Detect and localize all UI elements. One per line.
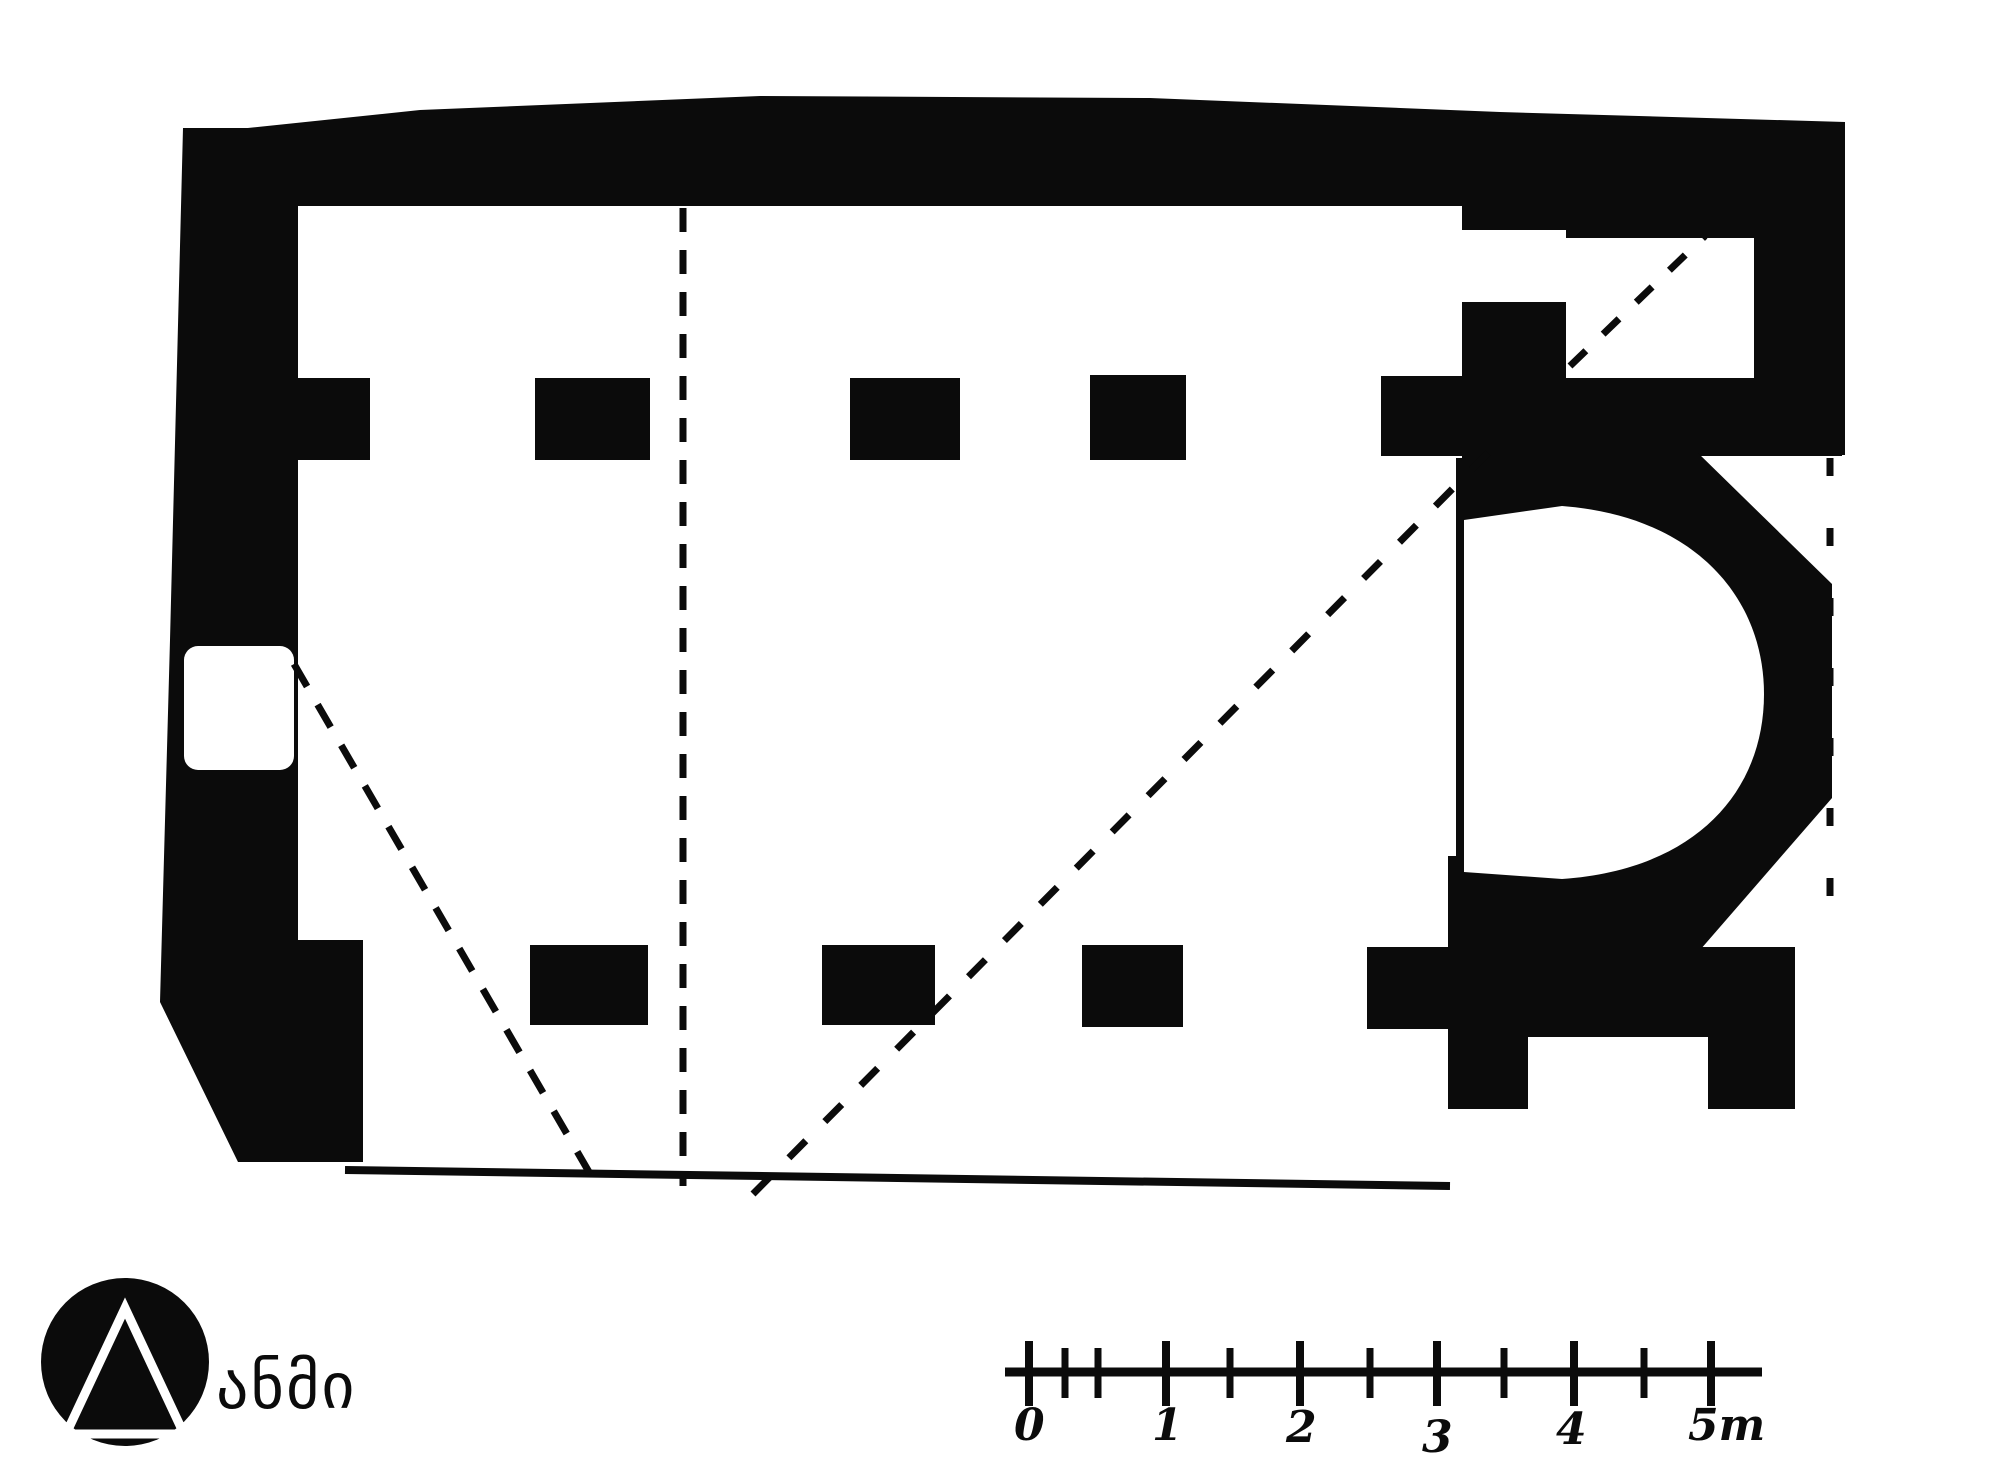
north-pier-respond	[298, 378, 370, 460]
scale-bar: 0 1 2 3 4 5m	[1005, 1341, 1765, 1463]
south-segment-1	[530, 945, 648, 1025]
west-wall	[160, 128, 363, 1162]
south-wall-east	[1367, 947, 1795, 1029]
scale-label-3: 3	[1422, 1412, 1453, 1463]
scale-label-1: 1	[1152, 1400, 1183, 1451]
floor-plan-drawing: 0 1 2 3 4 5m ანმი	[0, 0, 2000, 1473]
south-wall-outline	[345, 1170, 1450, 1186]
scale-label-4: 4	[1556, 1404, 1587, 1455]
northeast-chamber	[1566, 238, 1754, 378]
apse-north-wall-band	[1381, 376, 1842, 456]
north-pier-4	[1090, 375, 1186, 460]
west-door-opening	[184, 646, 294, 770]
north-pier-3	[850, 378, 960, 460]
logo: ანმი	[41, 1278, 357, 1446]
scale-label-2: 2	[1285, 1402, 1317, 1453]
scale-label-5m: 5m	[1688, 1400, 1765, 1451]
logo-text: ანმი	[216, 1350, 357, 1424]
document: 0 1 2 3 4 5m ანმი	[0, 0, 2000, 1473]
north-chancel-door	[1462, 230, 1566, 302]
southeast-door-notch	[1528, 1037, 1708, 1109]
north-wall	[190, 96, 1845, 240]
scale-bar-labels: 0 1 2 3 4 5m	[1014, 1400, 1765, 1463]
north-pier-2	[535, 378, 650, 460]
chancel-north-neck	[1462, 300, 1566, 380]
south-segment-2	[822, 945, 935, 1025]
scale-label-0: 0	[1014, 1400, 1045, 1451]
south-segment-3	[1082, 945, 1183, 1027]
apse-chord-line	[1456, 458, 1464, 873]
pier-rows	[298, 375, 1186, 1027]
dashed-diagonal-east	[753, 452, 1489, 1194]
